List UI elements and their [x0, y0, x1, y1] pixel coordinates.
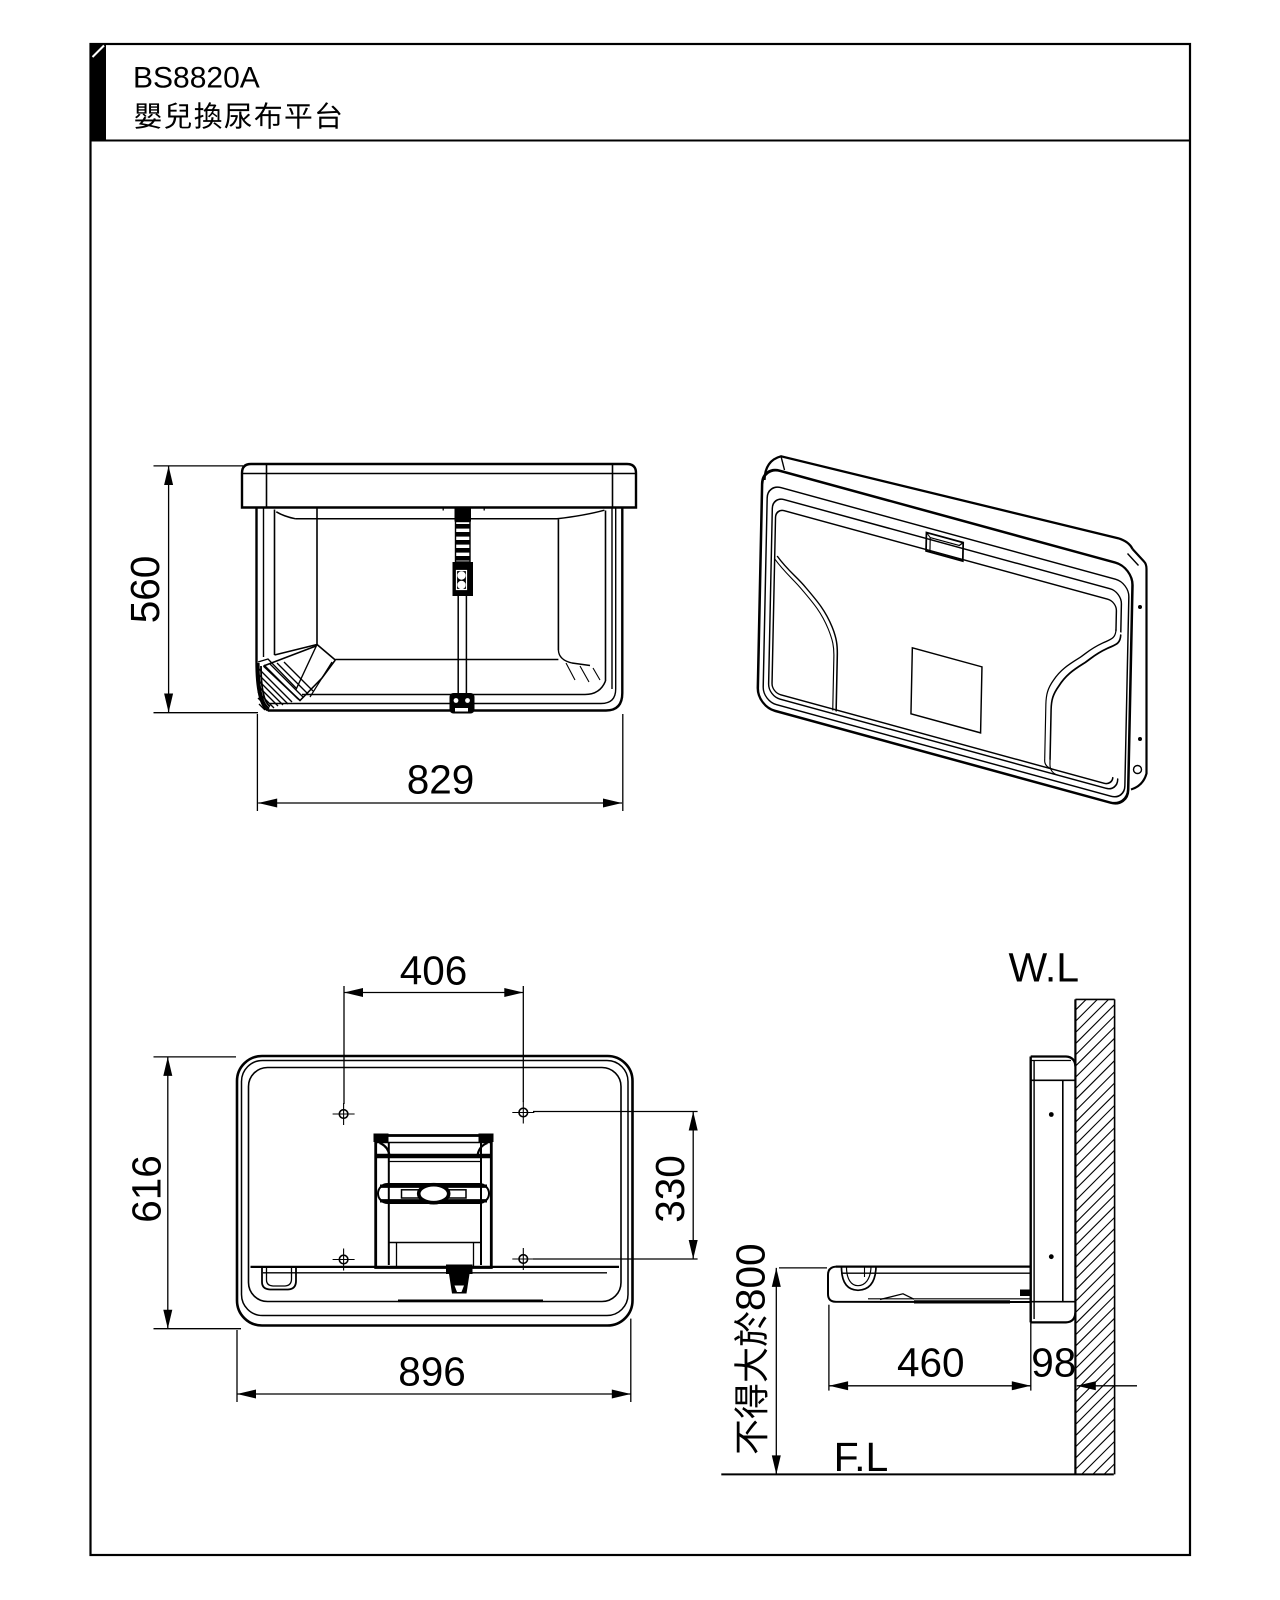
- svg-text:829: 829: [407, 757, 475, 803]
- svg-text:98: 98: [1031, 1340, 1076, 1386]
- svg-text:800: 800: [728, 1243, 774, 1311]
- svg-text:F.L: F.L: [834, 1434, 889, 1480]
- svg-text:BS8820A: BS8820A: [133, 62, 260, 95]
- svg-text:330: 330: [647, 1155, 693, 1223]
- svg-text:W.L: W.L: [1008, 945, 1079, 991]
- svg-text:460: 460: [897, 1340, 965, 1386]
- svg-text:896: 896: [398, 1349, 466, 1395]
- svg-text:406: 406: [400, 948, 468, 994]
- svg-text:616: 616: [124, 1155, 170, 1223]
- svg-text:560: 560: [122, 556, 168, 624]
